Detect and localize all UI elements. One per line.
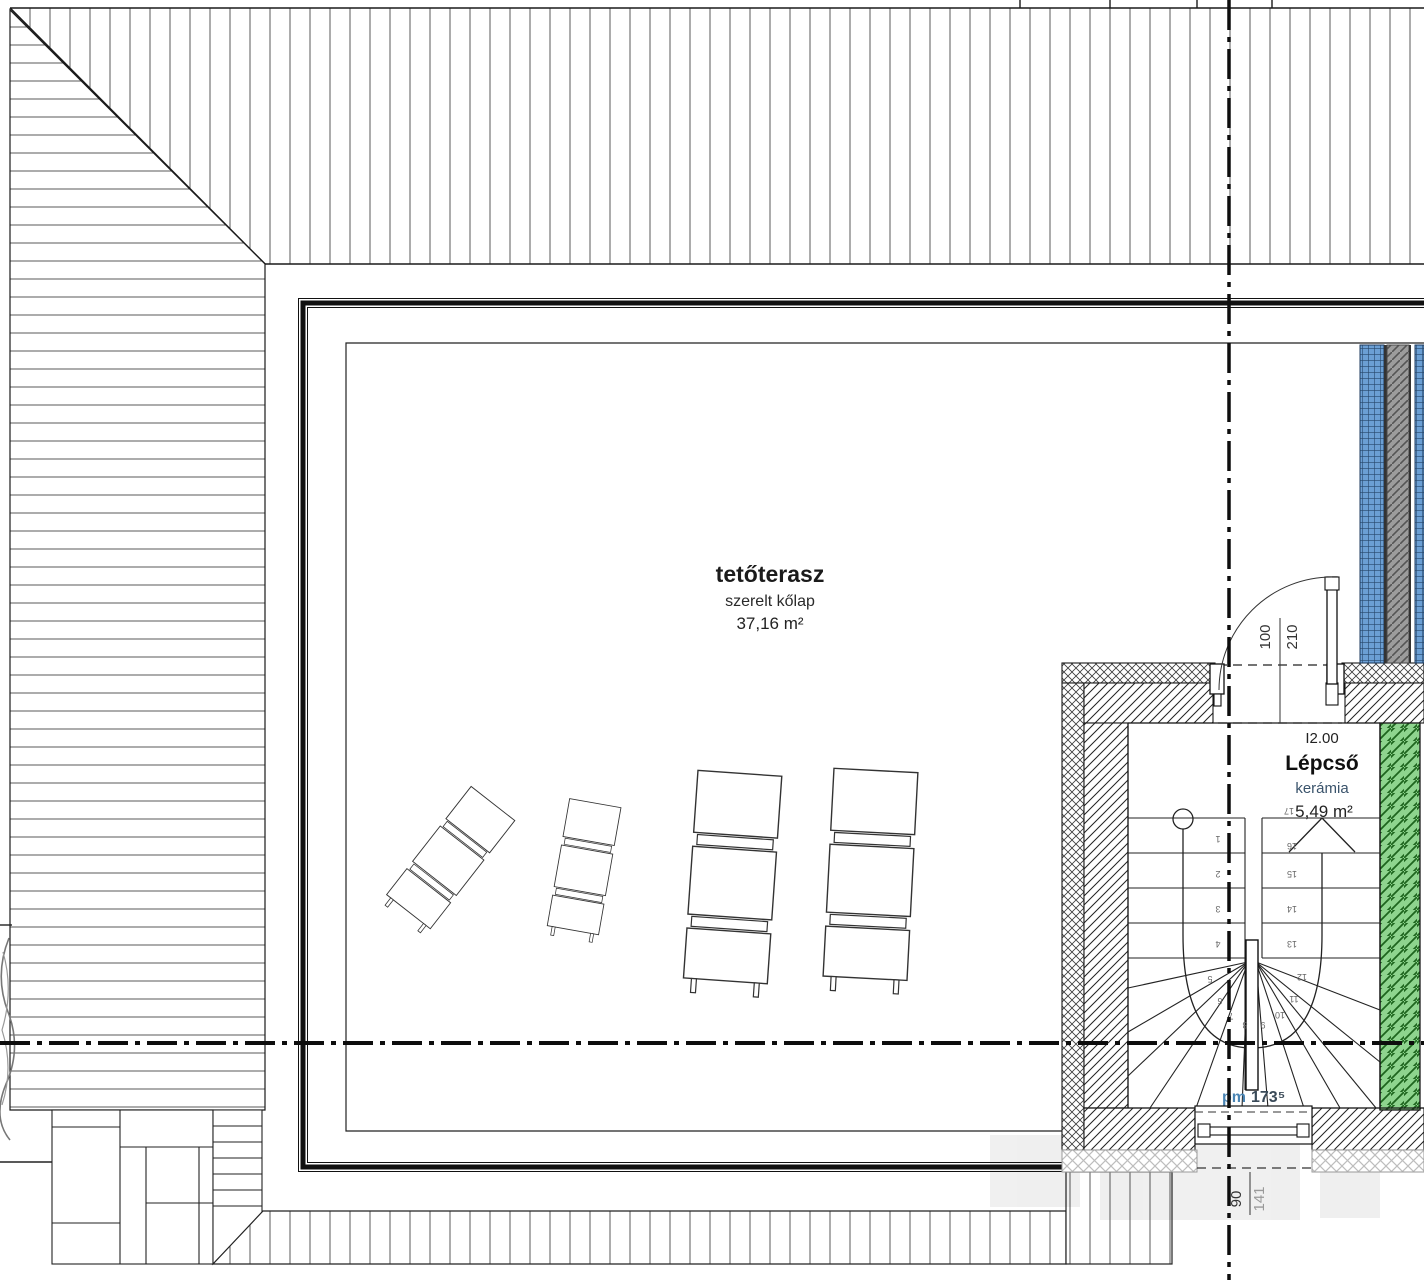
level-mark: pm173⁵	[1222, 1089, 1285, 1106]
terrace-finish: szerelt kőlap	[725, 593, 815, 610]
svg-text:16: 16	[1287, 841, 1297, 851]
svg-text:9: 9	[1260, 1020, 1265, 1030]
room-area: 5,49 m²	[1295, 802, 1353, 821]
floor-plan-drawing: tetőterasz szerelt kőlap 37,16 m²	[0, 0, 1424, 1280]
floor-plan-canvas: tetőterasz szerelt kőlap 37,16 m²	[0, 0, 1424, 1280]
svg-text:3: 3	[1215, 904, 1220, 914]
sun-lounger-3	[682, 770, 781, 997]
svg-text:4: 4	[1215, 939, 1220, 949]
window-frame	[1202, 1127, 1305, 1135]
svg-text:100: 100	[1257, 624, 1274, 649]
svg-text:2: 2	[1215, 869, 1220, 879]
svg-text:14: 14	[1287, 904, 1297, 914]
svg-text:17: 17	[1284, 806, 1294, 816]
stair-newel	[1246, 940, 1258, 1090]
sun-lounger-4	[822, 768, 918, 994]
svg-text:6: 6	[1217, 996, 1222, 1006]
room-number: I2.00	[1305, 730, 1338, 747]
stone-paving	[52, 1110, 213, 1264]
svg-text:8: 8	[1242, 1020, 1247, 1030]
terrace-name: tetőterasz	[716, 561, 825, 587]
gray-wall-strip	[1387, 345, 1409, 663]
room-finish: kerámia	[1295, 780, 1349, 797]
svg-text:210: 210	[1284, 624, 1301, 649]
terrace-area: 37,16 m²	[736, 614, 803, 633]
door-leaf	[1327, 577, 1337, 684]
green-shaft-strip	[1380, 723, 1420, 1110]
svg-text:12: 12	[1297, 972, 1307, 982]
svg-text:15: 15	[1287, 869, 1297, 879]
svg-text:11: 11	[1289, 994, 1298, 1004]
room-name: Lépcső	[1285, 752, 1359, 775]
lower-eave-band	[213, 1211, 1066, 1264]
svg-text:10: 10	[1275, 1010, 1285, 1020]
door-jamb-left	[1210, 664, 1224, 694]
svg-text:13: 13	[1287, 939, 1297, 949]
svg-text:141: 141	[1251, 1186, 1268, 1211]
svg-text:1: 1	[1215, 834, 1220, 844]
svg-text:5: 5	[1207, 974, 1212, 984]
